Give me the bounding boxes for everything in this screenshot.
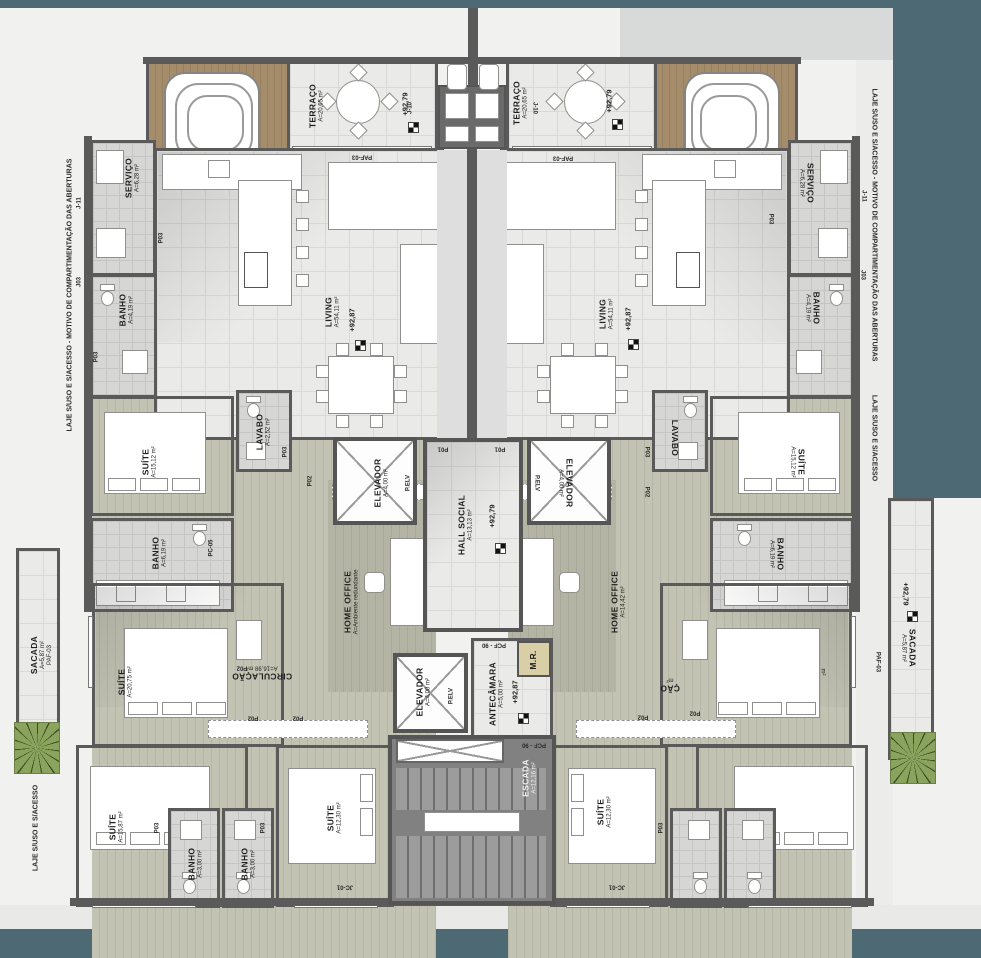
stool <box>635 274 648 287</box>
door-tag-p03: P03 <box>94 352 101 363</box>
door-tag-p03: P03 <box>767 214 774 225</box>
pillow <box>172 478 200 491</box>
bbq-sink <box>447 64 467 90</box>
teal-band-right <box>893 8 981 498</box>
room-label-circulation-right: ÇÃOm² <box>660 676 680 693</box>
edge-note-left: LAJE S/USO E S/ACESSO - MOTIVO DE COMPAR… <box>67 159 74 432</box>
level-checker-icon <box>496 544 505 553</box>
shaft-strip <box>437 150 467 438</box>
pillow <box>108 478 136 491</box>
room-label-bathroom-small-left2: BANHOA=3,00 m² <box>241 848 258 881</box>
pillow <box>808 478 836 491</box>
room-label-home-office-right: HOME OFFICEA=14,42 m² <box>611 571 628 633</box>
bath-sink <box>688 820 710 840</box>
dining-chair <box>561 415 574 428</box>
edge-note-bottom-left: LAJE S/USO E S/ACESSO <box>33 785 40 871</box>
dining-chair <box>370 343 383 356</box>
door-tag-pcf90: PCF - 90 <box>482 641 506 648</box>
shadow-top-right <box>620 8 893 60</box>
room-label-antechamber: ANTECÂMARAA=5,00 m² <box>489 662 506 726</box>
stool <box>296 218 309 231</box>
door-tag-p02: P02 <box>643 487 650 498</box>
level-checker-icon <box>519 714 528 723</box>
washer <box>96 228 126 258</box>
desk <box>390 538 424 626</box>
door-tag-pc05: PC-05 <box>209 539 216 556</box>
dining-chair <box>615 390 628 403</box>
laundry-tank <box>820 150 848 184</box>
pillow <box>818 832 848 845</box>
door-tag-p02: P02 <box>690 709 701 716</box>
dining-chair <box>316 390 329 403</box>
toilet <box>192 524 207 546</box>
room-label-suite-bath-left: BANHOA=6,19 m² <box>152 537 169 570</box>
room-label-living-left: LIVINGA=54,11 m² <box>325 297 342 328</box>
dining-chair <box>561 343 574 356</box>
level-mark: +92,87 <box>512 680 521 703</box>
elevator-machine-box <box>396 739 504 763</box>
dining-chair <box>394 365 407 378</box>
room-label-suite-master-left: SUÍTEA=20,75 m² <box>118 666 135 697</box>
balcony-door <box>851 616 856 688</box>
stool <box>296 190 309 203</box>
door-tag-p03: P03 <box>283 447 290 458</box>
toilet <box>683 396 698 418</box>
pillow <box>776 478 804 491</box>
planter-left <box>14 722 60 774</box>
door-tag-pelv: P.ELV <box>406 475 413 491</box>
door-tag-p03: P03 <box>159 233 166 244</box>
dining-chair <box>615 365 628 378</box>
bath-sink <box>180 820 202 840</box>
bbq-sink <box>479 64 499 90</box>
outer-wall-left <box>84 136 92 612</box>
stool <box>635 218 648 231</box>
room-label-terrace-left: TERRAÇOA=20,65 m² <box>309 84 326 128</box>
room-label-elevator-service: ELEVADORA=4,00 m² <box>416 668 433 717</box>
door-tag-p03: P03 <box>155 823 162 834</box>
level-mark: +92,87 <box>349 308 358 331</box>
dining-chair <box>394 390 407 403</box>
dining-chair <box>537 390 550 403</box>
room-label-service-right: SERVIÇOA=6,28 m² <box>798 163 815 203</box>
level-mark: +92,79 <box>489 504 498 527</box>
divider-niche <box>475 126 499 142</box>
dining-chair <box>336 343 349 356</box>
sofa-side <box>502 244 544 344</box>
sofa <box>328 162 440 230</box>
divider-niche <box>445 126 469 142</box>
shaft-strip <box>477 150 507 438</box>
stool <box>635 190 648 203</box>
door-tag-p01: P01 <box>438 445 449 452</box>
window-tag-paf03: PAF-03 <box>352 153 372 160</box>
room-label-bathroom-small-left: BANHOA=3,00 m² <box>188 848 205 881</box>
pillow <box>162 702 192 715</box>
window-tag-j03: J03 <box>859 270 866 280</box>
dining-chair <box>595 343 608 356</box>
dining-chair <box>316 365 329 378</box>
level-checker-icon <box>613 120 622 129</box>
nightstand-desk <box>682 620 708 660</box>
kitchen-sink <box>208 160 230 178</box>
bath-sink <box>742 820 764 840</box>
cooktop <box>676 252 700 288</box>
pillow <box>140 478 168 491</box>
room-label-mr: M.R. <box>529 650 539 669</box>
pillow <box>196 702 226 715</box>
bath-sink <box>678 442 698 460</box>
dining-chair <box>537 365 550 378</box>
stool <box>296 246 309 259</box>
level-mark: +92,79 <box>606 89 615 112</box>
room-label-living-right: LIVINGA=54,11 m² <box>599 299 616 330</box>
teal-band-top <box>0 0 981 8</box>
pillow <box>744 478 772 491</box>
terrace-table <box>336 80 380 124</box>
door-tag-p03: P03 <box>643 447 650 458</box>
edge-note-right-lower: LAJE S/USO E S/ACESSO <box>871 395 878 481</box>
pillow <box>784 832 814 845</box>
room-label-bathroom-social-right: BANHOA=4,19 m² <box>804 292 821 325</box>
level-checker-icon <box>629 340 638 349</box>
toilet <box>829 284 844 306</box>
level-checker-icon <box>409 123 418 132</box>
room-label-guest-wc-left: LAVABOA=2,52 m² <box>256 414 273 450</box>
toilet <box>100 284 115 306</box>
room-label-suite-master-right: m² <box>819 669 826 676</box>
pillow <box>786 702 816 715</box>
room-label-suite1587-left: SUÍTEA=15,87 m² <box>109 811 126 842</box>
desk <box>520 538 554 626</box>
pillow <box>752 702 782 715</box>
door-tag-p02: P02 <box>293 714 304 721</box>
room-label-elevator-right: ELEVADORA=4,00 m² <box>557 459 574 508</box>
center-wall <box>467 149 477 439</box>
toilet <box>737 524 752 546</box>
pillow <box>571 774 584 802</box>
room-label-suite1512-right: SUÍTEA=15,12 m² <box>789 446 806 477</box>
stool <box>635 246 648 259</box>
wardrobe-strip <box>208 720 368 738</box>
window-tag-j10: J-10 <box>408 102 415 114</box>
terrace-table <box>564 80 608 124</box>
laundry-tank <box>96 150 124 184</box>
stair-flight-lower <box>396 836 546 898</box>
window-tag-jc01: JC-01 <box>609 883 625 890</box>
door-tag-p02: P02 <box>638 713 649 720</box>
window-tag-paf03: PAF-03 <box>553 154 573 161</box>
window-tag-j03: J03 <box>77 277 84 287</box>
dining-chair <box>370 415 383 428</box>
room-label-hall-social: HALL SOCIALA=13,13 m² <box>458 495 475 555</box>
level-checker-icon <box>356 341 365 350</box>
room-label-suite1230-left: SUÍTEA=12,30 m² <box>327 802 344 833</box>
door-tag-pelv: P.ELV <box>533 475 540 491</box>
room-label-stairs: ESCADAA=12,16 m² <box>522 759 539 797</box>
dining-chair <box>595 415 608 428</box>
divider-niche <box>445 93 469 119</box>
kitchen-sink <box>714 160 736 178</box>
level-mark: +92,79 <box>901 582 910 605</box>
pillow <box>571 808 584 836</box>
planter-right <box>890 732 936 784</box>
window-tag-j11: J-11 <box>860 190 867 202</box>
dining-chair <box>336 415 349 428</box>
door-tag-p02: P02 <box>308 476 315 487</box>
pillow <box>130 832 160 845</box>
washer <box>818 228 848 258</box>
door-tag-p03: P03 <box>659 823 666 834</box>
door-tag-p02: P02 <box>237 664 248 671</box>
pillow <box>718 702 748 715</box>
nightstand-desk <box>236 620 262 660</box>
window-tag-j10: J-10 <box>531 102 538 114</box>
sofa-side <box>400 244 442 344</box>
window-tag-paf03: PAF-03 <box>874 652 881 672</box>
door-tag-p02: P02 <box>248 714 259 721</box>
room-label-guest-wc-right: LAVABO <box>669 420 679 456</box>
room-label-balcony-left: SACADAA=5,87 m²PAF-03 <box>30 636 54 674</box>
stool <box>296 274 309 287</box>
room-label-suite1512-left: SUÍTEA=15,12 m² <box>142 446 159 477</box>
door-tag-p03: P03 <box>261 823 268 834</box>
door-tag-pelv: P.ELV <box>449 688 456 704</box>
room-label-suite-bath-right: BANHOA=6,19 m² <box>768 538 785 571</box>
edge-note-right: LAJE S/USO E S/ACESSO - MOTIVO DE COMPAR… <box>871 89 878 362</box>
cooktop <box>244 252 268 288</box>
pillow <box>128 702 158 715</box>
pillow <box>360 774 373 802</box>
room-label-home-office-left: HOME OFFICEA=Ambiente redundante <box>344 570 361 635</box>
window-tag-j11: J-11 <box>77 197 84 209</box>
dining-table <box>550 356 616 414</box>
outer-wall-right <box>852 136 860 612</box>
toilet <box>747 872 762 894</box>
room-label-balcony-right: SACADAA=5,87 m² <box>900 629 917 667</box>
divider-niche <box>475 93 499 119</box>
bath-sink <box>234 820 256 840</box>
level-mark: +92,87 <box>625 307 634 330</box>
pillow <box>360 808 373 836</box>
room-label-terrace-right: TERRAÇOA=20,65 m² <box>513 81 530 125</box>
room-label-suite1230-right: SUÍTEA=12,30 m² <box>597 796 614 827</box>
bath-sink <box>796 350 822 374</box>
room-label-service-left: SERVIÇOA=6,28 m² <box>125 158 142 198</box>
window-tag-jc01: JC-01 <box>337 883 353 890</box>
toilet <box>693 872 708 894</box>
room-label-bathroom-social-left: BANHOA=4,19 m² <box>119 294 136 327</box>
stair-landing <box>424 812 520 832</box>
office-chair <box>559 572 580 593</box>
bath-sink <box>122 350 148 374</box>
sofa <box>504 162 616 230</box>
wardrobe-strip <box>576 720 736 738</box>
dining-table <box>328 356 394 414</box>
office-chair <box>364 572 385 593</box>
balcony-door <box>88 616 93 688</box>
door-tag-pcf90: PCF - 90 <box>522 741 546 748</box>
center-wall-top <box>468 8 478 88</box>
door-tag-p01: P01 <box>495 445 506 452</box>
floor-plan-canvas: LAJE S/USO E S/ACESSO - MOTIVO DE COMPAR… <box>0 0 981 958</box>
level-checker-icon <box>908 612 917 621</box>
room-label-elevator-left: ELEVADORA=4,00 m² <box>374 459 391 508</box>
